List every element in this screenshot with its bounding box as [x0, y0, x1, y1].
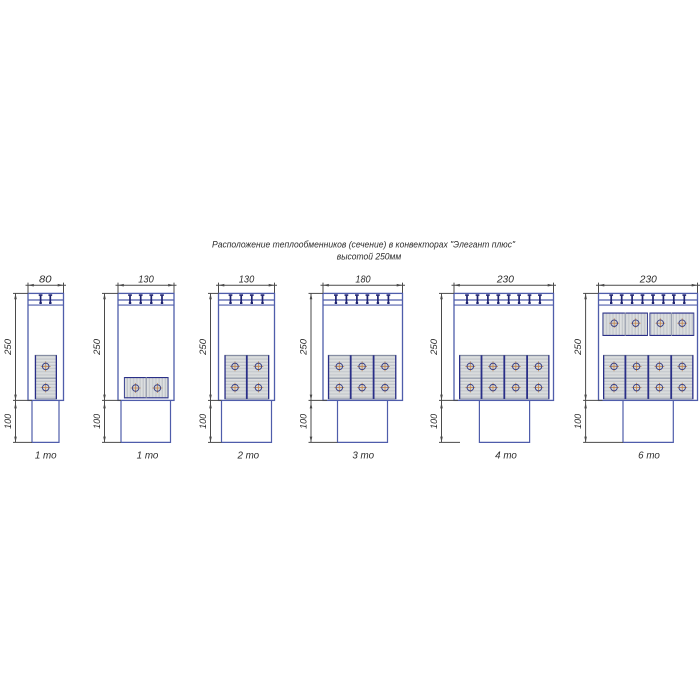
svg-text:250: 250	[198, 338, 209, 356]
svg-text:100: 100	[573, 413, 584, 429]
svg-text:250: 250	[3, 338, 14, 356]
svg-text:250: 250	[92, 338, 103, 356]
svg-text:Расположение теплообменников (: Расположение теплообменников (сечение) в…	[212, 239, 516, 250]
svg-text:4 то: 4 то	[495, 451, 517, 462]
svg-text:100: 100	[198, 413, 209, 429]
svg-text:100: 100	[429, 413, 440, 429]
svg-text:1 то: 1 то	[137, 451, 159, 462]
svg-text:250: 250	[298, 338, 309, 356]
svg-text:80: 80	[39, 275, 52, 286]
svg-text:100: 100	[92, 413, 103, 429]
svg-text:6 то: 6 то	[638, 451, 660, 462]
svg-text:100: 100	[3, 413, 14, 429]
svg-text:высотой 250мм: высотой 250мм	[337, 251, 402, 262]
svg-text:180: 180	[355, 275, 370, 286]
svg-text:100: 100	[298, 413, 309, 429]
svg-text:250: 250	[573, 338, 584, 356]
svg-text:250: 250	[429, 338, 440, 356]
svg-text:1 то: 1 то	[35, 451, 57, 462]
svg-text:230: 230	[639, 275, 657, 286]
svg-text:130: 130	[239, 275, 255, 286]
svg-text:3 то: 3 то	[352, 451, 374, 462]
svg-text:2 то: 2 то	[236, 451, 259, 462]
svg-text:230: 230	[496, 275, 514, 286]
svg-text:130: 130	[138, 275, 154, 286]
